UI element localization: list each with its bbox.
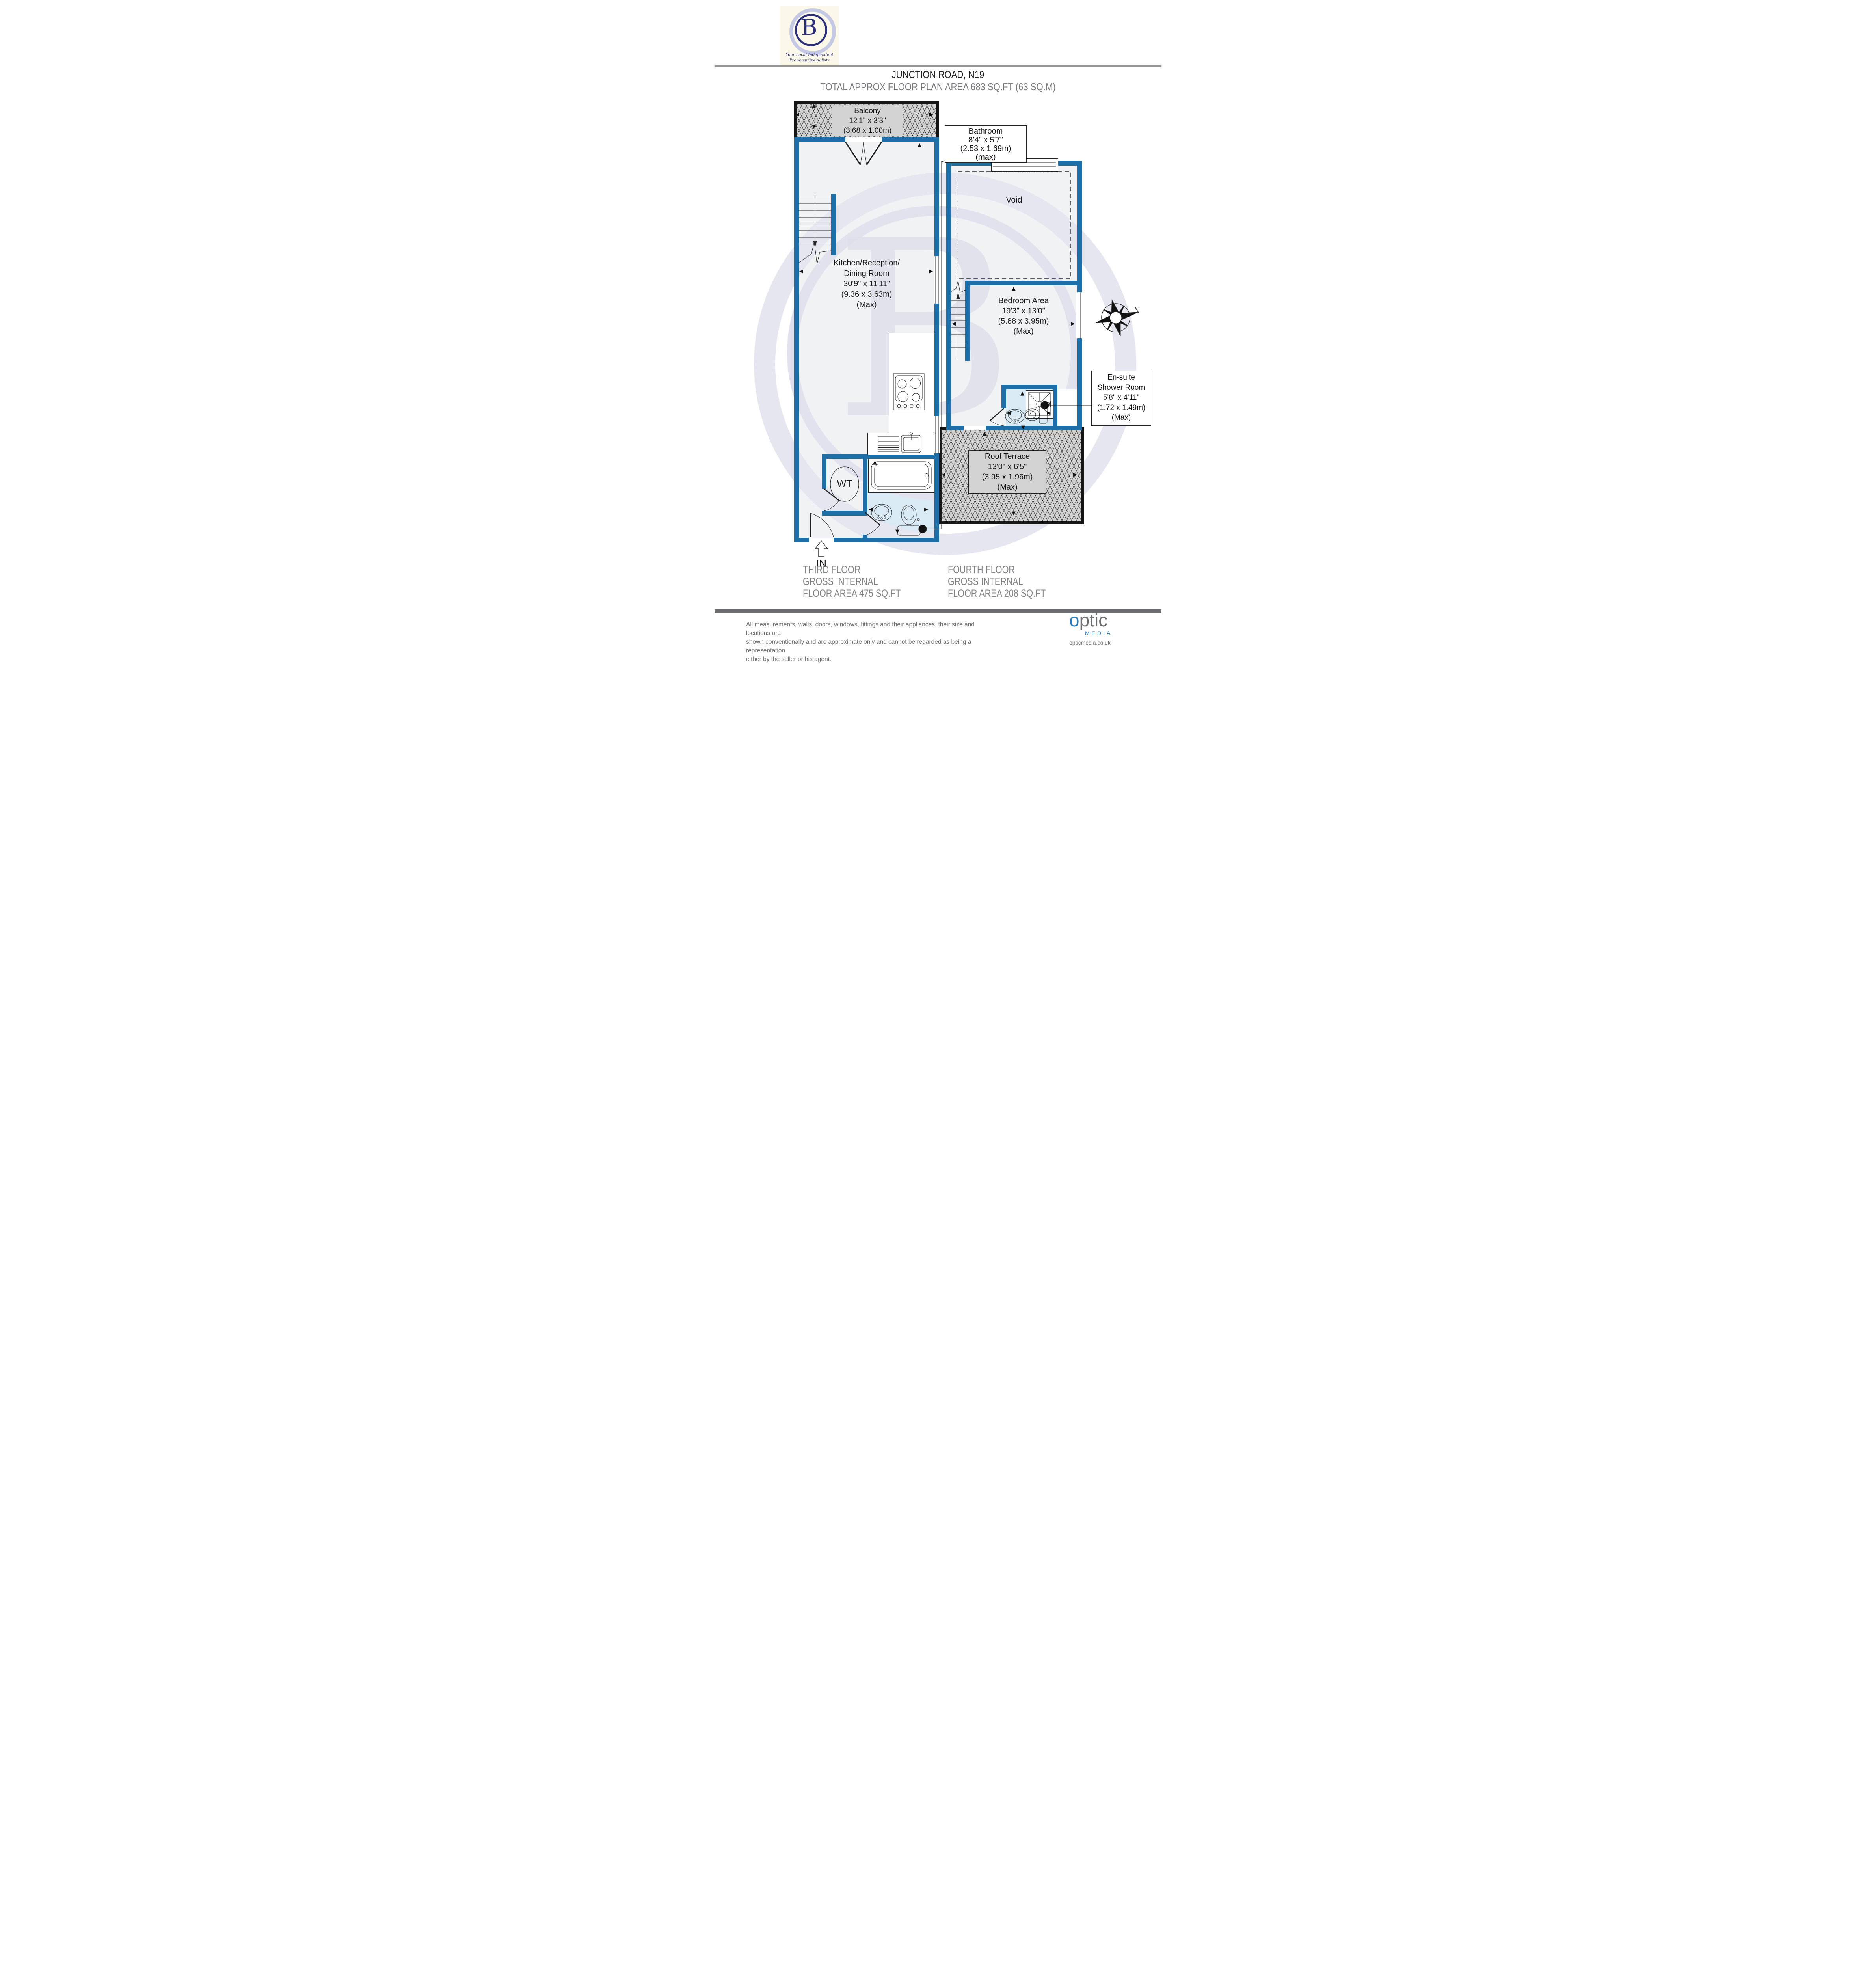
- disclaimer-line-3: either by the seller or his agent.: [746, 655, 983, 664]
- terrace-arrow-down-icon: ▼: [1012, 511, 1016, 516]
- bedroom-label: Bedroom Area 19'3" x 13'0" (5.88 x 3.95m…: [964, 296, 1083, 337]
- disclaimer-line-2: shown conventionally and are approximate…: [746, 638, 983, 655]
- bedroom-arrow-up-icon: ▲: [1012, 286, 1016, 291]
- kitchen-dims-metric: (9.36 x 3.63m): [808, 289, 926, 300]
- third-wall-bottom-right: [834, 538, 939, 542]
- ensuite-arrow-left-icon: ◀: [1007, 410, 1011, 415]
- kitchen-name-1: Kitchen/Reception/: [808, 258, 926, 268]
- balcony-wall-top: [794, 101, 939, 104]
- third-right-window-upper: [934, 256, 940, 304]
- kitchen-counter-side: [889, 333, 934, 435]
- fourth-caption-1: FOURTH FLOOR: [948, 564, 1080, 576]
- terrace-wall-right: [1081, 430, 1084, 524]
- bath-divider-wall: [863, 454, 867, 512]
- terrace-dims-metric: (3.95 x 1.96m): [969, 472, 1046, 482]
- terrace-label: Roof Terrace 13'0" x 6'5" (3.95 x 1.96m)…: [968, 450, 1046, 494]
- compass-north-label: N: [1132, 306, 1143, 315]
- wt-wall-left: [822, 459, 826, 489]
- ensuite-dims-metric: (1.72 x 1.49m): [1092, 403, 1151, 413]
- kitchen-dims-imperial: 30'9" x 11'11": [808, 279, 926, 289]
- bedroom-dims-imperial: 19'3" x 13'0": [964, 306, 1083, 316]
- balcony-arrow-left-icon: ◀: [795, 112, 799, 117]
- terrace-max: (Max): [969, 482, 1046, 492]
- terrace-arrow-up-icon: ▲: [983, 431, 986, 436]
- third-caption-2: GROSS INTERNAL: [803, 576, 929, 587]
- bath-arrow-left-icon: ◀: [869, 507, 873, 512]
- bathroom-max: (max): [945, 153, 1026, 162]
- third-wall-left: [794, 137, 799, 542]
- fourth-wall-left: [946, 161, 951, 430]
- wt-wall-bottom: [822, 511, 867, 516]
- balcony-label: Balcony 12'1" x 3'3" (3.68 x 1.00m): [832, 105, 903, 136]
- ensuite-label: En-suite Shower Room 5'8" x 4'11" (1.72 …: [1091, 371, 1151, 426]
- bathroom-name: Bathroom: [945, 127, 1026, 136]
- balcony-arrow-down-icon: ▼: [812, 124, 816, 129]
- ensuite-top-wall: [1001, 385, 1057, 389]
- fourth-caption-3: FLOOR AREA 208 SQ.FT: [948, 587, 1080, 599]
- fourth-caption-2: GROSS INTERNAL: [948, 576, 1080, 587]
- optic-logo-ptic: ptic: [1079, 610, 1108, 630]
- terrace-wall-bottom: [938, 521, 1084, 524]
- bedroom-dims-metric: (5.88 x 3.95m): [964, 316, 1083, 326]
- bedroom-arrow-right-icon: ▶: [1071, 321, 1075, 326]
- compass-rose-icon: [1092, 295, 1142, 341]
- bath-arrow-down-icon: ▼: [895, 529, 899, 534]
- disclaimer: All measurements, walls, doors, windows,…: [746, 620, 983, 664]
- ensuite-max: (Max): [1092, 413, 1151, 423]
- kitchen-max: (Max): [808, 300, 926, 310]
- ensuite-arrow-up-icon: ▲: [1020, 391, 1024, 396]
- third-right-window-lower: [934, 416, 940, 453]
- ensuite-window-recess: [1057, 389, 1077, 426]
- balcony-dims-imperial: 12'1" x 3'3": [832, 116, 903, 126]
- ensuite-name-2: Shower Room: [1092, 383, 1151, 393]
- balcony-dims-metric: (3.68 x 1.00m): [832, 126, 903, 136]
- entrance-in-arrow-icon: [815, 541, 828, 557]
- bathroom-label: Bathroom 8'4" x 5'7" (2.53 x 1.69m) (max…: [945, 125, 1027, 163]
- third-wall-top-left: [794, 137, 845, 142]
- fourth-wall-bottom-left: [946, 426, 964, 430]
- bath-arrow-up-icon: ▲: [873, 460, 877, 465]
- kitchen-arrow-left-icon: ◀: [799, 269, 803, 274]
- third-wall-bottom-left: [794, 538, 809, 542]
- ensuite-left-wall: [1001, 385, 1006, 408]
- balcony-name: Balcony: [832, 106, 903, 116]
- fourth-floor-caption: FOURTH FLOOR GROSS INTERNAL FLOOR AREA 2…: [948, 564, 1080, 599]
- disclaimer-line-1: All measurements, walls, doors, windows,…: [746, 620, 983, 638]
- logo-letter: B: [780, 16, 838, 39]
- bedroom-top-wall: [965, 281, 1082, 285]
- void-label: Void: [975, 196, 1053, 205]
- bathroom-dims-metric: (2.53 x 1.69m): [945, 144, 1026, 153]
- kitchen-name-2: Dining Room: [808, 268, 926, 279]
- logo-tagline-2: Property Specialists: [780, 58, 839, 63]
- third-wall-top-right: [882, 137, 939, 142]
- agency-logo: B Your Local Independent Property Specia…: [780, 6, 839, 66]
- kitchen-arrow-up-icon: ▲: [918, 143, 921, 148]
- bedroom-arrow-left-icon: ◀: [952, 321, 956, 326]
- balcony-arrow-right-icon: ▶: [929, 112, 933, 117]
- third-caption-1: THIRD FLOOR: [803, 564, 929, 576]
- header-divider: [715, 65, 1161, 67]
- third-floor-caption: THIRD FLOOR GROSS INTERNAL FLOOR AREA 47…: [803, 564, 929, 599]
- bedroom-max: (Max): [964, 326, 1083, 337]
- balcony-wall-left: [794, 101, 797, 137]
- ensuite-dims-imperial: 5'8" x 4'11": [1092, 393, 1151, 403]
- wt-label: WT: [830, 478, 859, 490]
- optic-logo-o: o: [1069, 610, 1079, 630]
- bath-tub: [868, 459, 934, 493]
- optic-media-logo: optic MEDIA opticmedia.co.uk: [1069, 611, 1156, 646]
- third-caption-3: FLOOR AREA 475 SQ.FT: [803, 587, 929, 599]
- terrace-arrow-left-icon: ◀: [942, 472, 945, 477]
- third-wall-right: [934, 137, 939, 542]
- ensuite-arrow-down-icon: ▼: [1021, 425, 1025, 430]
- page-subtitle: TOTAL APPROX FLOOR PLAN AREA 683 SQ.FT (…: [739, 81, 1137, 93]
- bathroom-dims-imperial: 8'4" x 5'7": [945, 136, 1026, 144]
- kitchen-counter-bottom: [867, 433, 934, 455]
- page-title: JUNCTION ROAD, N19: [739, 69, 1137, 81]
- optic-logo-media: MEDIA: [1085, 630, 1156, 636]
- terrace-name: Roof Terrace: [969, 451, 1046, 462]
- ensuite-name-1: En-suite: [1092, 373, 1151, 383]
- third-stair-wall: [831, 194, 836, 255]
- optic-logo-url: opticmedia.co.uk: [1069, 639, 1156, 646]
- floorplan-page: B Your Local Independent Property Specia…: [703, 0, 1172, 664]
- kitchen-label: Kitchen/Reception/ Dining Room 30'9" x 1…: [808, 258, 926, 310]
- bedroom-name: Bedroom Area: [964, 296, 1083, 306]
- fourth-wall-bottom-right: [986, 426, 1082, 430]
- balcony-wall-right: [936, 101, 939, 137]
- bath-divider-stub: [863, 535, 867, 538]
- bath-arrow-right-icon: ▶: [924, 507, 928, 512]
- kitchen-arrow-right-icon: ▶: [929, 269, 933, 274]
- terrace-dims-imperial: 13'0" x 6'5": [969, 462, 1046, 472]
- logo-tagline-1: Your Local Independent: [780, 53, 839, 57]
- balcony-arrow-up-icon: ▲: [812, 103, 816, 108]
- terrace-arrow-right-icon: ▶: [1073, 472, 1077, 477]
- ensuite-arrow-right-icon: ▶: [1047, 410, 1051, 415]
